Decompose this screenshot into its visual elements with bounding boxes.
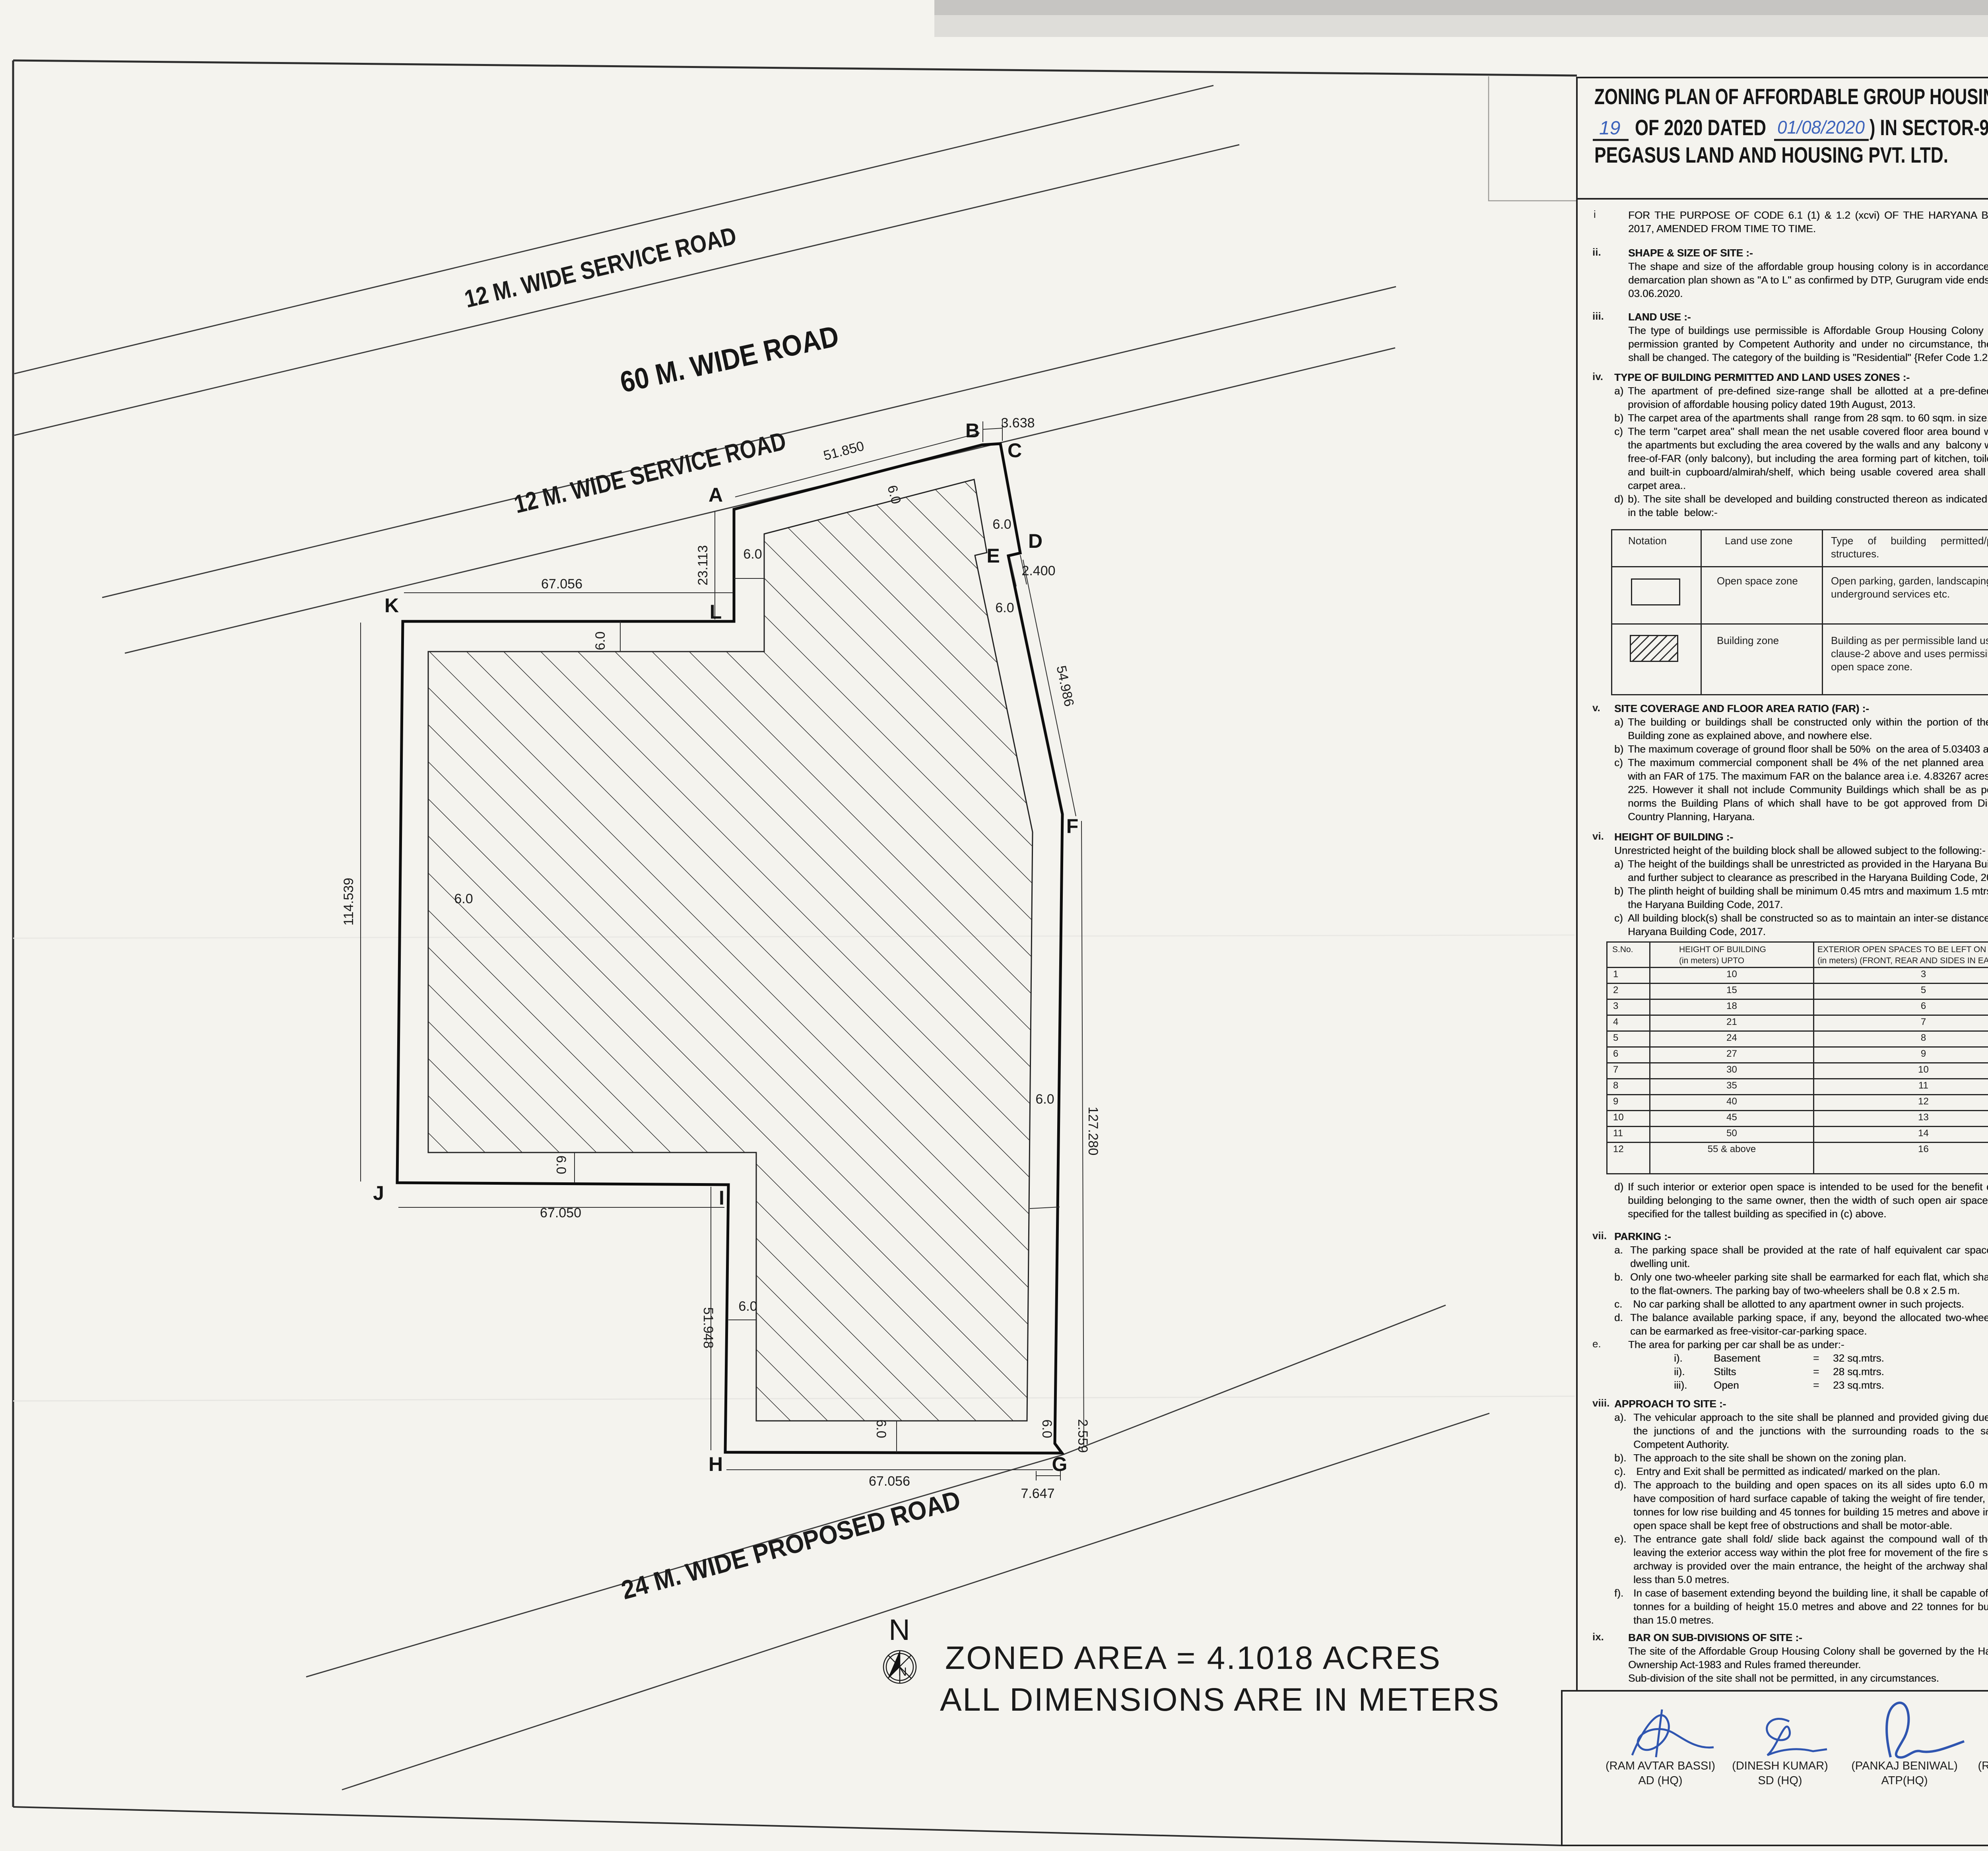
svg-text:H: H bbox=[709, 1453, 723, 1475]
svg-text:6.0: 6.0 bbox=[593, 631, 608, 650]
svg-text:60 M. WIDE ROAD: 60 M. WIDE ROAD bbox=[617, 319, 842, 399]
svg-text:54.986: 54.986 bbox=[1053, 664, 1077, 708]
svg-text:24 M. WIDE PROPOSED ROAD: 24 M. WIDE PROPOSED ROAD bbox=[618, 1485, 964, 1605]
svg-text:127.280: 127.280 bbox=[1085, 1107, 1101, 1156]
svg-text:A: A bbox=[709, 484, 723, 506]
svg-text:67.056: 67.056 bbox=[869, 1474, 910, 1489]
svg-text:L: L bbox=[710, 601, 722, 623]
svg-text:2.559: 2.559 bbox=[1075, 1419, 1090, 1453]
svg-text:51.948: 51.948 bbox=[701, 1307, 716, 1348]
svg-text:I: I bbox=[719, 1187, 724, 1209]
svg-text:6.0: 6.0 bbox=[992, 517, 1011, 532]
svg-text:6.0: 6.0 bbox=[874, 1419, 889, 1438]
svg-text:6.0: 6.0 bbox=[995, 600, 1014, 615]
svg-text:2.400: 2.400 bbox=[1021, 563, 1055, 578]
svg-text:6.0: 6.0 bbox=[553, 1155, 569, 1174]
svg-text:N: N bbox=[889, 1613, 910, 1646]
svg-text:6.0: 6.0 bbox=[1039, 1419, 1054, 1438]
svg-text:7.647: 7.647 bbox=[1021, 1486, 1054, 1501]
svg-text:F: F bbox=[1066, 815, 1079, 837]
svg-text:3.638: 3.638 bbox=[1001, 415, 1035, 431]
svg-text:PEGASUS LAND AND HOUSING PVT.: PEGASUS LAND AND HOUSING PVT. LTD. bbox=[1594, 142, 1948, 167]
svg-text:23.113: 23.113 bbox=[695, 545, 711, 585]
svg-text:B: B bbox=[965, 419, 980, 442]
svg-text:12 M. WIDE SERVICE ROAD: 12 M. WIDE SERVICE ROAD bbox=[462, 222, 739, 313]
svg-text:6.0: 6.0 bbox=[738, 1299, 757, 1314]
svg-text:01/08/2020: 01/08/2020 bbox=[1777, 117, 1865, 138]
svg-text:67.056: 67.056 bbox=[541, 576, 582, 592]
svg-text:OF 2020 DATED: OF 2020 DATED bbox=[1635, 115, 1766, 140]
svg-text:C: C bbox=[1008, 439, 1022, 462]
svg-text:ZONING PLAN OF AFFORDABLE GROU: ZONING PLAN OF AFFORDABLE GROUP HOUSING … bbox=[1594, 84, 1988, 109]
svg-text:51.850: 51.850 bbox=[822, 438, 866, 464]
svg-text:114.539: 114.539 bbox=[341, 878, 356, 925]
svg-text:67.050: 67.050 bbox=[540, 1205, 581, 1220]
svg-text:6.0: 6.0 bbox=[743, 547, 762, 562]
svg-text:D: D bbox=[1028, 530, 1043, 552]
svg-text:K: K bbox=[384, 594, 399, 617]
svg-text:G: G bbox=[1052, 1453, 1068, 1475]
svg-text:N: N bbox=[898, 1665, 907, 1678]
svg-text:J: J bbox=[373, 1182, 384, 1204]
svg-text:6.0: 6.0 bbox=[1035, 1092, 1054, 1107]
svg-text:19: 19 bbox=[1599, 118, 1620, 139]
svg-text:E: E bbox=[986, 545, 1000, 567]
svg-text:ZONED AREA = 4.1018 ACRES: ZONED AREA = 4.1018 ACRES bbox=[945, 1640, 1440, 1676]
svg-text:ALL DIMENSIONS ARE IN METERS: ALL DIMENSIONS ARE IN METERS bbox=[940, 1682, 1499, 1718]
svg-text:6.0: 6.0 bbox=[454, 891, 473, 906]
svg-text:) IN SECTOR-93, GURUGRAM MANES: ) IN SECTOR-93, GURUGRAM MANESAR URBAN C… bbox=[1870, 115, 1988, 140]
